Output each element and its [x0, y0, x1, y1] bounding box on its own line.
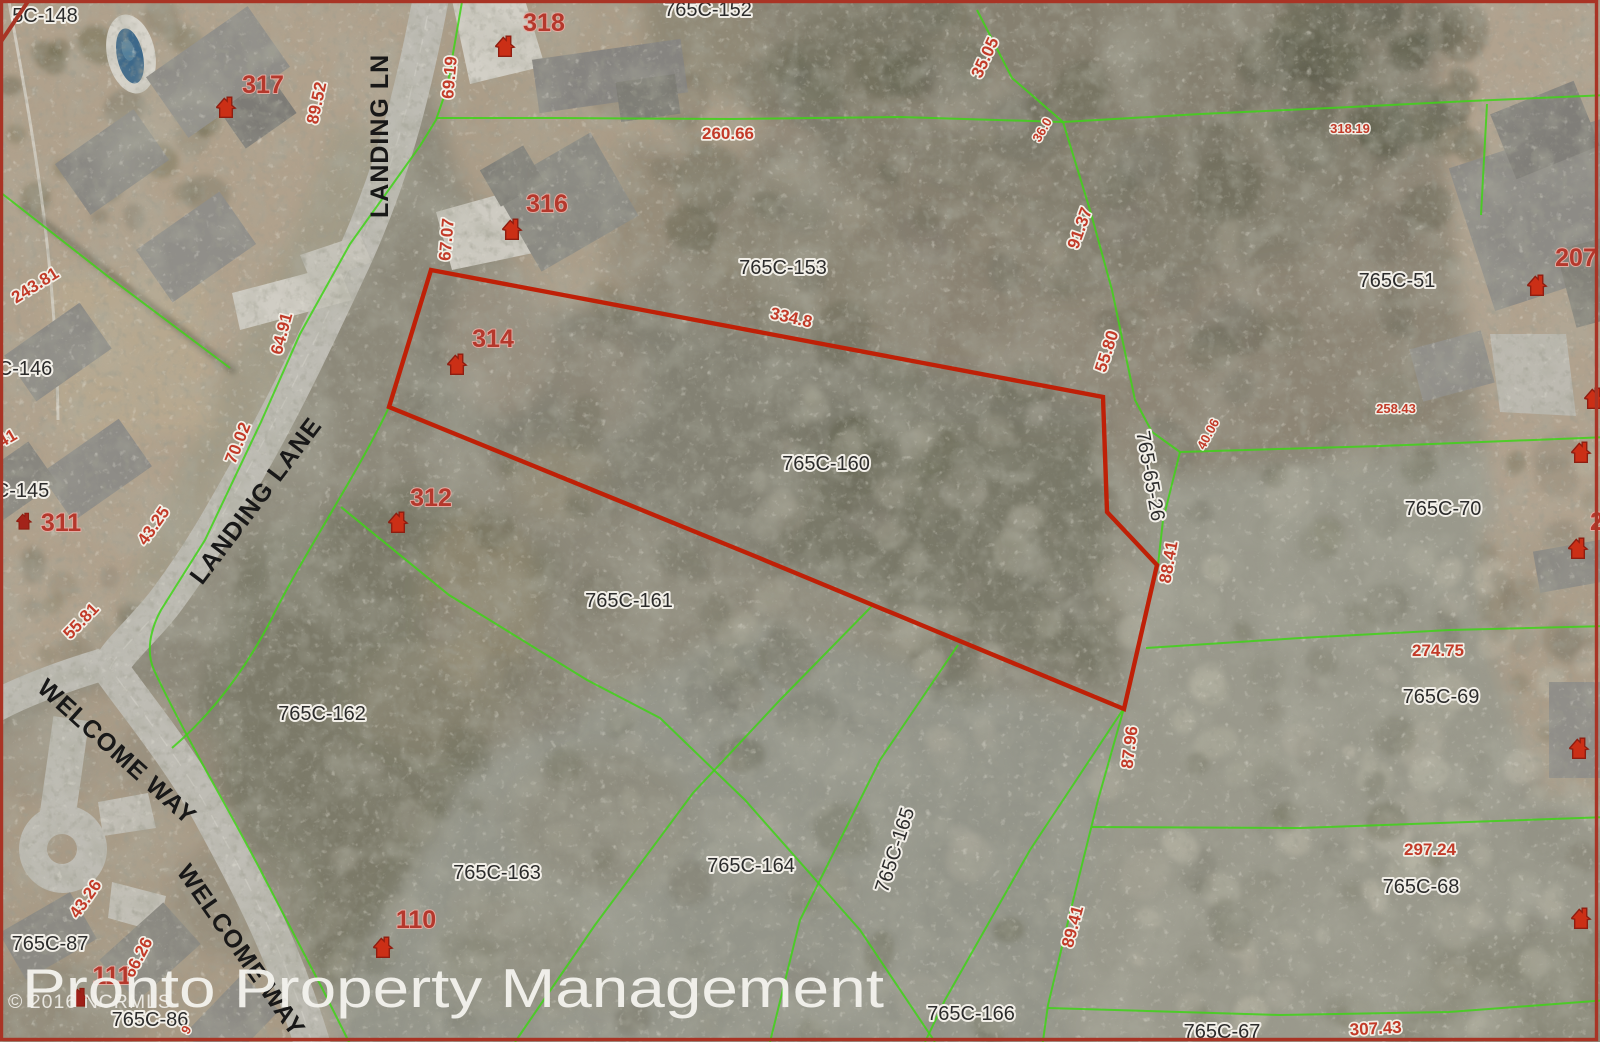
svg-text:312: 312	[410, 484, 452, 512]
svg-text:314: 314	[472, 325, 514, 353]
svg-text:765C-70: 765C-70	[1405, 498, 1482, 520]
svg-text:274.75: 274.75	[1412, 641, 1464, 660]
svg-text:LANDING LN: LANDING LN	[366, 54, 394, 218]
svg-text:765C-166: 765C-166	[927, 1003, 1015, 1025]
svg-text:317: 317	[242, 71, 284, 99]
svg-text:C-145: C-145	[0, 480, 49, 502]
svg-text:69.19: 69.19	[438, 56, 461, 100]
svg-text:765C-68: 765C-68	[1383, 876, 1460, 898]
svg-text:765C-153: 765C-153	[739, 257, 827, 279]
svg-text:316: 316	[526, 190, 568, 218]
svg-text:260.66: 260.66	[702, 124, 754, 143]
svg-text:318: 318	[523, 9, 565, 37]
svg-text:Pronto Property Management: Pronto Property Management	[22, 957, 884, 1019]
svg-text:207: 207	[1555, 244, 1597, 272]
svg-text:765C-160: 765C-160	[782, 453, 870, 475]
svg-text:318.19: 318.19	[1330, 121, 1370, 136]
svg-text:765C-51: 765C-51	[1359, 270, 1436, 292]
svg-text:C-146: C-146	[0, 358, 52, 380]
svg-text:765C-163: 765C-163	[453, 862, 541, 884]
svg-text:765C-87: 765C-87	[12, 933, 89, 955]
svg-text:297.24: 297.24	[1404, 840, 1457, 859]
svg-text:765C-69: 765C-69	[1403, 686, 1480, 708]
svg-text:311: 311	[41, 509, 81, 537]
svg-text:67.07: 67.07	[435, 218, 458, 262]
svg-text:307.43: 307.43	[1349, 1018, 1402, 1040]
svg-text:765C-162: 765C-162	[278, 703, 366, 725]
svg-text:765C-161: 765C-161	[585, 590, 673, 612]
svg-text:258.43: 258.43	[1376, 401, 1416, 416]
svg-text:765C-164: 765C-164	[707, 855, 795, 877]
svg-text:110: 110	[396, 906, 436, 934]
